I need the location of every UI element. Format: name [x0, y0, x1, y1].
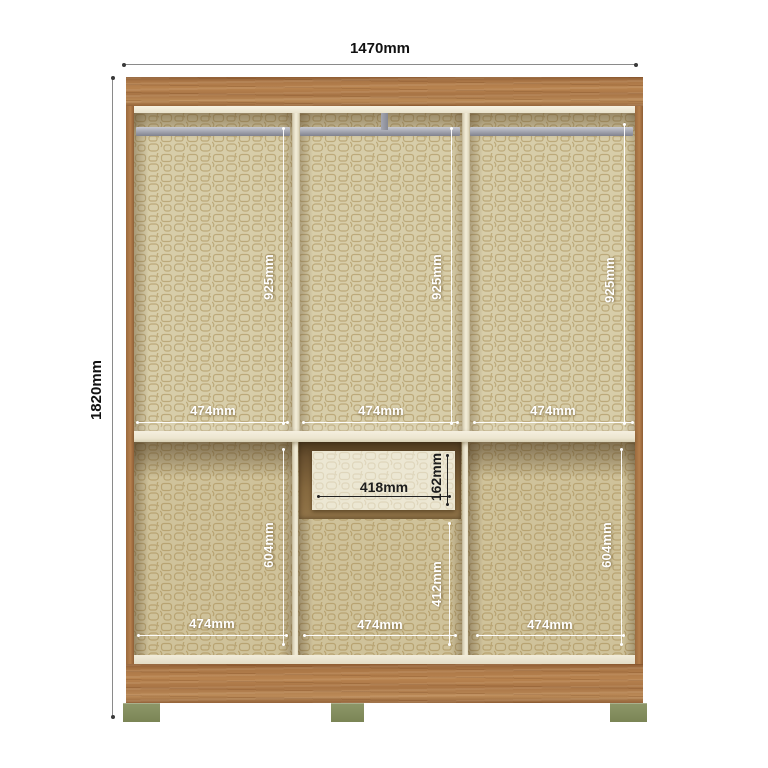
overall-width-dim-line	[123, 64, 637, 65]
upper-middle-height-dim-line	[451, 128, 452, 424]
lower-right-height-dim-label: 604mm	[599, 505, 615, 585]
lower-left-width-dim-label: 474mm	[172, 616, 252, 632]
lower-middle-height-dim-line	[449, 523, 450, 645]
drawer-height-dim-label: 162mm	[428, 437, 444, 517]
top-panel	[126, 77, 643, 106]
lower-right-height-dim-line	[621, 449, 622, 645]
upper-right-height-dim-line	[624, 124, 625, 424]
lower-right-width-dim-label: 474mm	[510, 617, 590, 633]
overall-width-dim-label: 1470mm	[330, 41, 430, 57]
wardrobe-dimension-diagram: 1470mm 1820mm 925mm 474mm 925mm 474mm 92…	[0, 0, 768, 768]
left-side-panel	[126, 106, 134, 664]
overall-height-dim-label: 1820mm	[89, 340, 105, 440]
lower-left-width-dim-line	[138, 635, 287, 636]
upper-right-width-dim-label: 474mm	[513, 403, 593, 419]
foot-right	[610, 703, 647, 722]
hanging-rail-middle	[300, 127, 460, 136]
upper-middle-width-dim-line	[303, 422, 458, 423]
hanging-rail-left	[136, 127, 290, 136]
upper-right-height-dim-label: 925mm	[602, 240, 618, 320]
bottom-trim-strip	[134, 655, 635, 664]
overall-height-dim-line	[112, 77, 113, 718]
wardrobe	[126, 77, 643, 703]
lower-right-width-dim-line	[477, 635, 624, 636]
right-side-panel	[635, 106, 643, 664]
lower-left-height-dim-line	[283, 449, 284, 645]
base-panel	[126, 664, 643, 703]
lower-middle-width-dim-line	[304, 635, 456, 636]
upper-right-width-dim-line	[474, 422, 633, 423]
hanging-rail-right	[470, 127, 633, 136]
upper-left-width-dim-line	[137, 422, 288, 423]
upper-left-width-dim-label: 474mm	[173, 403, 253, 419]
upper-middle-width-dim-label: 474mm	[341, 403, 421, 419]
upper-left-height-dim-label: 925mm	[261, 237, 277, 317]
foot-center	[331, 703, 364, 722]
rail-center-support	[381, 113, 388, 130]
lower-left-height-dim-label: 604mm	[261, 505, 277, 585]
middle-shelf	[134, 431, 635, 442]
upper-left-height-dim-line	[283, 128, 284, 424]
drawer-height-dim-line	[447, 455, 448, 505]
lower-middle-width-dim-label: 474mm	[340, 617, 420, 633]
upper-middle-height-dim-label: 925mm	[429, 237, 445, 317]
lower-middle-height-dim-label: 412mm	[429, 544, 445, 624]
foot-left	[123, 703, 160, 722]
drawer-width-dim-label: 418mm	[344, 479, 424, 495]
